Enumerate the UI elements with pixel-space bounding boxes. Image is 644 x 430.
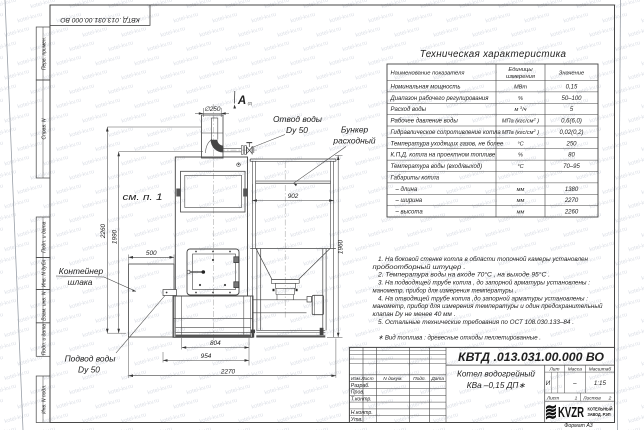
svg-text:1380: 1380 — [565, 187, 579, 193]
svg-text:манометр, прибор для измере: манометр, прибор для измерения температу… — [373, 286, 517, 294]
svg-text:Котел водогрейный: Котел водогрейный — [457, 370, 535, 379]
svg-text:0,02(0,2): 0,02(0,2) — [559, 130, 583, 136]
svg-text:N докум.: N докум. — [383, 376, 402, 382]
svg-text:0,6(6,0): 0,6(6,0) — [561, 119, 582, 125]
svg-text:0,15: 0,15 — [566, 84, 578, 90]
svg-text:А: А — [237, 95, 246, 107]
svg-text:∗ Вид топлива : древесные: ∗ Вид топлива : древесные отходы пеллети… — [378, 334, 541, 342]
svg-text:Изм.Лист: Изм.Лист — [351, 376, 374, 382]
svg-text:И: И — [546, 380, 551, 387]
svg-text:клапан Dу не менее 40 мм .: клапан Dу не менее 40 мм . — [373, 311, 456, 318]
svg-text:ЗАВОД. РЭП: ЗАВОД. РЭП — [588, 412, 611, 417]
svg-text:250: 250 — [565, 141, 577, 147]
svg-text:– высота: – высота — [391, 210, 424, 216]
svg-text:2: 2 — [608, 395, 612, 401]
svg-text:Формат А3: Формат А3 — [564, 423, 592, 429]
svg-text:КОТЕЛЬНЫЙ: КОТЕЛЬНЫЙ — [588, 407, 613, 412]
svg-text:Dy 50: Dy 50 — [286, 125, 308, 135]
svg-text:–: – — [572, 380, 577, 387]
svg-text:%: % — [518, 153, 523, 159]
svg-text:2260: 2260 — [100, 223, 107, 239]
svg-text:– длина: – длина — [391, 187, 418, 193]
svg-text:измерения: измерения — [506, 74, 535, 80]
svg-text:Номинальная мощность: Номинальная мощность — [391, 84, 461, 90]
svg-text:°С: °С — [517, 141, 524, 147]
svg-text:1. На боковой стенке котла: 1. На боковой стенке котла в области топ… — [378, 255, 588, 263]
svg-text:мм: мм — [517, 198, 525, 204]
svg-text:Подп. и дата: Подп. и дата — [41, 221, 47, 253]
svg-text:Гидравлическое сопротивление к: Гидравлическое сопротивление котла — [391, 130, 502, 136]
svg-text:Н.контр.: Н.контр. — [351, 410, 373, 416]
svg-text:К.П.Д. котла на проектном топл: К.П.Д. котла на проектном топливе — [391, 153, 496, 159]
svg-text:Расход воды: Расход воды — [391, 107, 427, 113]
svg-text:Подп. и дата: Подп. и дата — [41, 324, 47, 356]
svg-text:Бункер: Бункер — [341, 125, 369, 135]
svg-text:%: % — [518, 96, 523, 102]
svg-text:Единицы: Единицы — [508, 67, 533, 73]
svg-text:Взам. инв. N: Взам. инв. N — [41, 291, 47, 321]
svg-text:3. На подводящей трубе кот: 3. На подводящей трубе котла , до запорн… — [378, 279, 590, 287]
svg-text:954: 954 — [201, 353, 212, 360]
svg-text:Значение: Значение — [559, 71, 585, 77]
svg-text:KVZR: KVZR — [558, 404, 584, 421]
svg-text:Масса: Масса — [568, 366, 583, 372]
svg-text:1960: 1960 — [338, 239, 345, 254]
svg-text:50–100: 50–100 — [561, 96, 582, 102]
svg-text:°С: °С — [517, 164, 524, 170]
svg-text:Dy 50: Dy 50 — [78, 365, 100, 375]
svg-text:Рабочее давление воды: Рабочее давление воды — [391, 119, 459, 125]
svg-text:70–95: 70–95 — [563, 164, 580, 170]
svg-text:2270: 2270 — [220, 368, 236, 375]
svg-text:Лист: Лист — [546, 395, 559, 401]
svg-text:∅250: ∅250 — [204, 106, 221, 113]
svg-text:шлака: шлака — [68, 277, 93, 287]
svg-text:(2): (2) — [248, 102, 253, 106]
svg-text:КВа –0,15 ДП∗: КВа –0,15 ДП∗ — [467, 381, 526, 390]
svg-text:Техническая характеристика: Техническая характеристика — [420, 49, 567, 60]
svg-text:2270: 2270 — [564, 198, 579, 204]
svg-text:МВт: МВт — [514, 84, 527, 90]
svg-text:1: 1 — [575, 395, 578, 401]
svg-text:Справ. N: Справ. N — [41, 118, 47, 139]
svg-text:КВТД .013.031.00.000 ВО: КВТД .013.031.00.000 ВО — [60, 16, 140, 23]
svg-text:Контейнер: Контейнер — [59, 266, 104, 276]
svg-text:Инв. N подл.: Инв. N подл. — [41, 385, 47, 414]
svg-text:2. Температура воды на вх: 2. Температура воды на входе 70°С , на в… — [377, 271, 550, 279]
svg-text:804: 804 — [210, 340, 221, 347]
svg-text:Листов: Листов — [582, 395, 601, 401]
svg-text:Габариты котла: Габариты котла — [391, 175, 440, 181]
svg-text:манометр, прибор для измере: манометр, прибор для измерения температу… — [373, 302, 603, 310]
svg-text:Диапазон рабочего регулировани: Диапазон рабочего регулирования — [390, 96, 490, 102]
svg-text:Температура уходящих газов, не: Температура уходящих газов, не более — [391, 141, 504, 147]
svg-text:Температура воды (вход/выход): Температура воды (вход/выход) — [391, 164, 483, 170]
svg-text:5. Остальные технические тр: 5. Остальные технические требования по О… — [378, 318, 574, 326]
svg-text:902: 902 — [288, 193, 299, 200]
svg-text:Дата: Дата — [430, 376, 444, 382]
svg-text:см. п. 1: см. п. 1 — [123, 192, 163, 202]
svg-text:Масштаб: Масштаб — [589, 366, 612, 372]
svg-text:Подвод воды: Подвод воды — [65, 354, 116, 364]
svg-text:пробоотборный штуцер .: пробоотборный штуцер . — [373, 263, 466, 271]
svg-text:1990: 1990 — [112, 229, 119, 244]
svg-text:Утв.: Утв. — [351, 417, 363, 423]
svg-text:Т.контр.: Т.контр. — [351, 396, 372, 402]
svg-text:КВТД .013.031.00.000 ВО: КВТД .013.031.00.000 ВО — [458, 350, 604, 364]
svg-text:мм: мм — [517, 210, 525, 216]
svg-text:Подп.: Подп. — [413, 376, 426, 382]
svg-text:4. На отводящей трубе котл: 4. На отводящей трубе котла ,до запорной… — [378, 294, 588, 302]
svg-text:– ширина: – ширина — [391, 198, 423, 204]
svg-text:Наименование показателя: Наименование показателя — [391, 71, 465, 77]
svg-text:2260: 2260 — [564, 210, 579, 216]
svg-text:Инв. N дубл: Инв. N дубл — [41, 260, 47, 288]
svg-text:Пров.: Пров. — [351, 390, 365, 396]
svg-text:80: 80 — [568, 153, 575, 159]
svg-text:расходный: расходный — [332, 136, 375, 146]
svg-text:Лит: Лит — [549, 366, 560, 372]
svg-text:Отвод воды: Отвод воды — [273, 114, 322, 124]
svg-text:Перв. примен.: Перв. примен. — [41, 37, 47, 70]
svg-text:Разраб.: Разраб. — [351, 383, 370, 389]
svg-text:1:15: 1:15 — [594, 380, 607, 387]
svg-text:500: 500 — [146, 250, 157, 257]
svg-text:мм: мм — [517, 187, 525, 193]
